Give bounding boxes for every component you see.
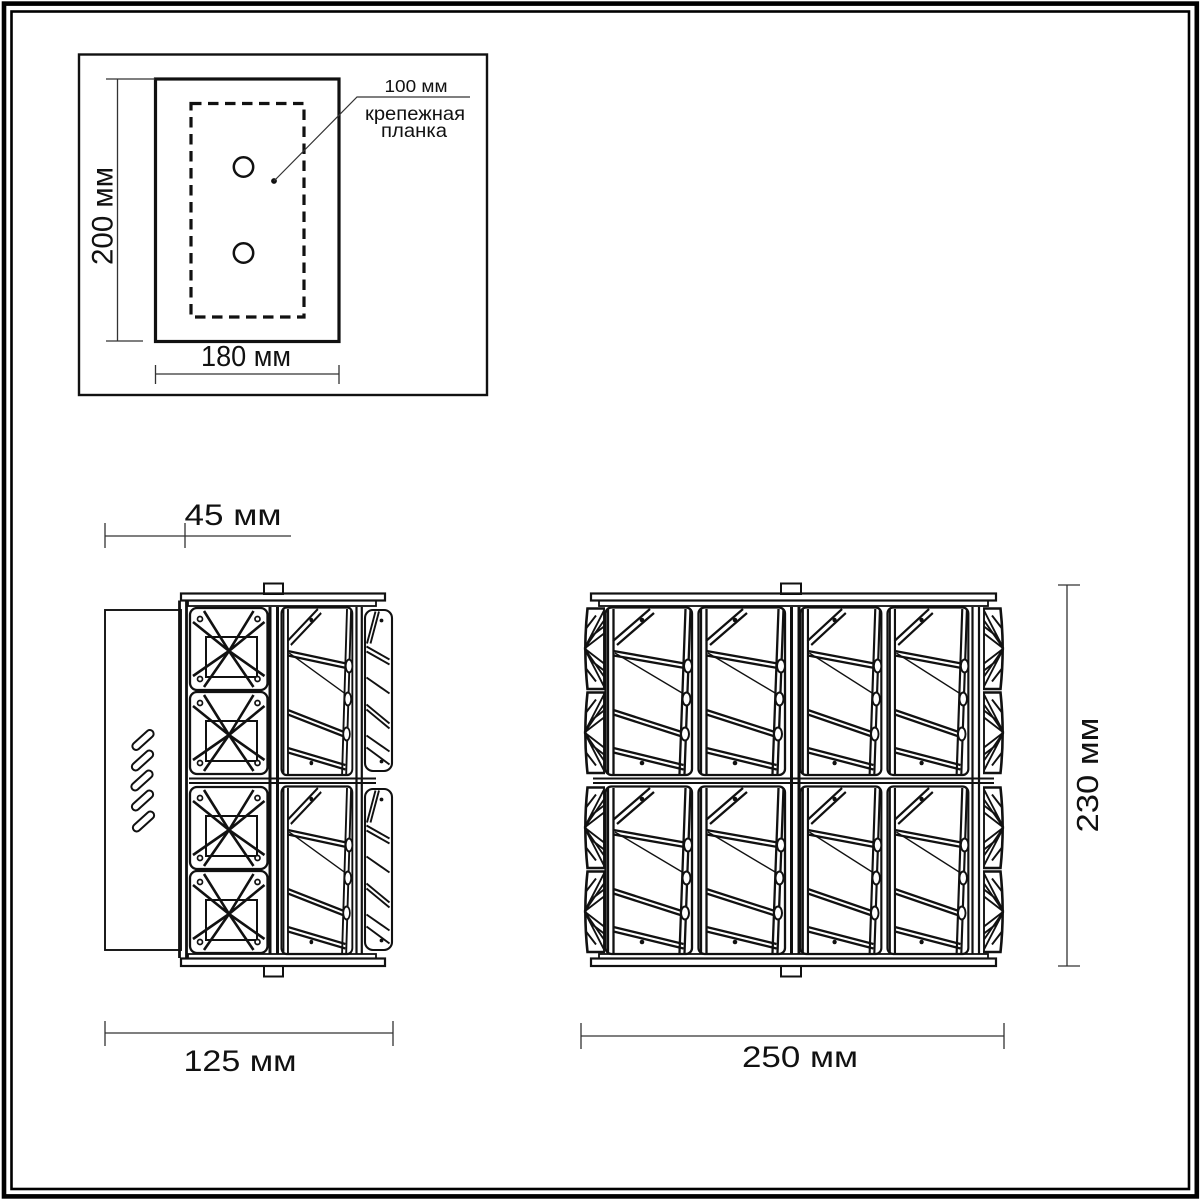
svg-text:180 мм: 180 мм	[201, 341, 291, 373]
svg-text:250 мм: 250 мм	[742, 1041, 858, 1074]
svg-text:125 мм: 125 мм	[184, 1045, 297, 1078]
svg-text:45 мм: 45 мм	[185, 499, 282, 532]
svg-text:100 мм: 100 мм	[385, 76, 448, 96]
svg-text:200 мм: 200 мм	[87, 167, 120, 265]
svg-text:планка: планка	[381, 120, 447, 142]
svg-text:230 мм: 230 мм	[1070, 718, 1105, 833]
